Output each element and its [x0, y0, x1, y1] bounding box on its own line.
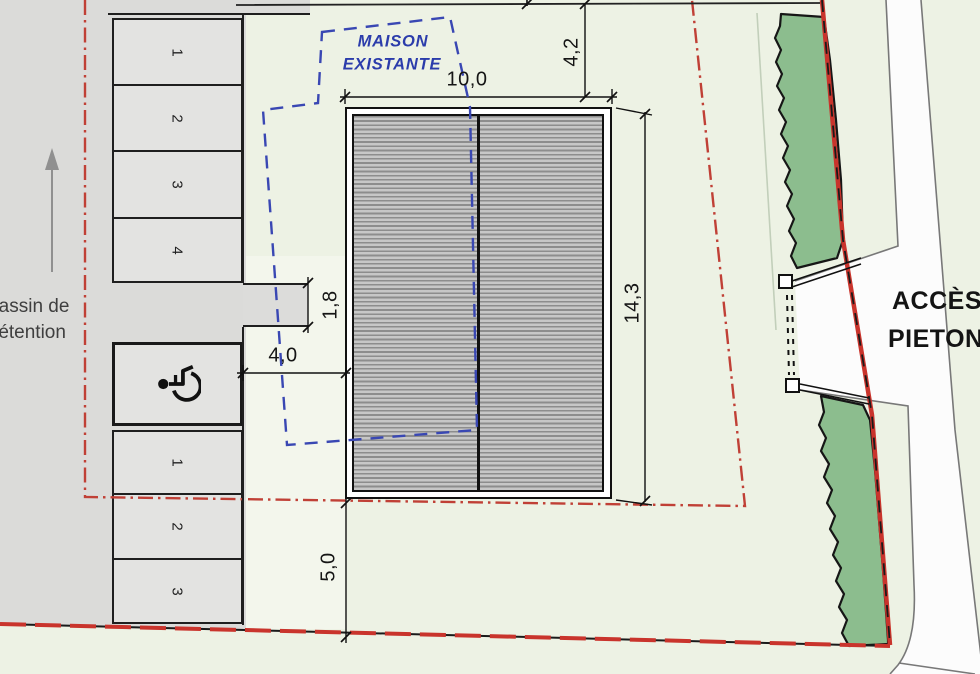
up-arrow-icon: [45, 148, 59, 272]
setback-dashdot-line: [85, 0, 745, 506]
existing-house-outline: [263, 17, 477, 445]
basin-label-line2: rétention: [0, 322, 66, 344]
existing-house-label-line1: MAISON: [358, 33, 429, 52]
dimension-side-gap: 4,0: [268, 345, 297, 368]
dimension-building-width: 10,0: [447, 69, 488, 92]
dimension-front-setback: 4,2: [561, 37, 584, 66]
dimension-walkway-width: 1,8: [320, 290, 343, 319]
plan-linework: [0, 0, 980, 674]
dimension-lines: [237, 4, 652, 643]
site-plan: 1 2 3 4 1 2 3: [0, 0, 980, 674]
pedestrian-access-label-line1: ACCÈS: [892, 287, 980, 316]
parking-edge-lines: [108, 14, 310, 625]
basin-label-line1: Bassin de: [0, 296, 69, 318]
grass-edge-line: [757, 13, 776, 330]
existing-house-label-line2: EXISTANTE: [343, 56, 442, 75]
pedestrian-access-label-line2: PIETON: [888, 325, 980, 354]
hedge-lower: [819, 396, 888, 646]
dimension-rear-setback: 5,0: [318, 552, 341, 581]
dimension-building-depth: 14,3: [622, 283, 645, 324]
